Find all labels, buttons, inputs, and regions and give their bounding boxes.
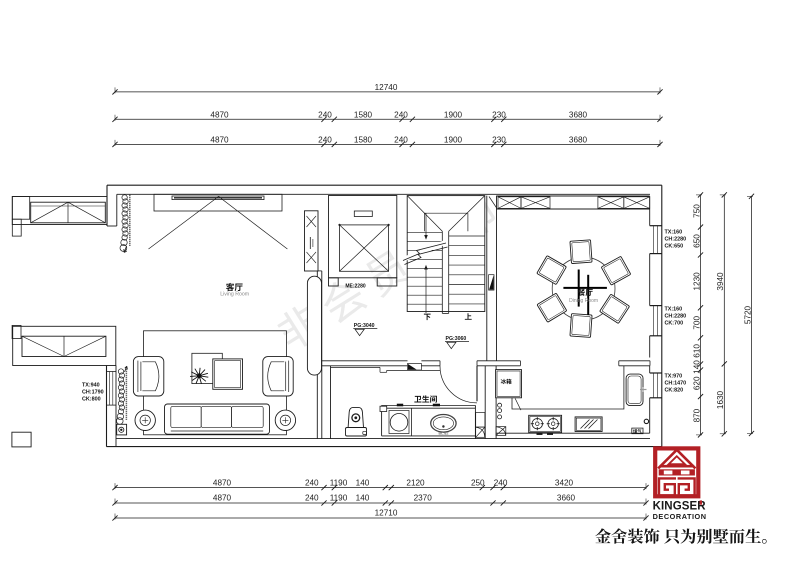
svg-text:1230: 1230 [692, 272, 701, 291]
svg-text:140: 140 [356, 494, 370, 503]
svg-text:CH:2280: CH:2280 [665, 237, 687, 243]
svg-text:240: 240 [318, 135, 332, 144]
svg-text:4870: 4870 [213, 494, 232, 503]
svg-text:3420: 3420 [555, 478, 574, 487]
svg-text:4870: 4870 [213, 478, 232, 487]
svg-text:240: 240 [305, 494, 319, 503]
svg-text:BL:82: BL:82 [439, 432, 449, 436]
svg-text:12740: 12740 [375, 83, 398, 92]
svg-text:240: 240 [394, 135, 408, 144]
svg-text:650: 650 [692, 234, 701, 248]
svg-text:TX:160: TX:160 [665, 307, 683, 313]
svg-text:870: 870 [692, 408, 701, 422]
svg-text:250: 250 [471, 478, 485, 487]
svg-text:Living Room: Living Room [220, 291, 249, 297]
svg-text:1580: 1580 [354, 110, 373, 119]
svg-text:CK:820: CK:820 [665, 388, 684, 394]
svg-text:3680: 3680 [569, 110, 588, 119]
svg-text:Dining Room: Dining Room [569, 298, 598, 304]
svg-text:TX:940: TX:940 [82, 383, 100, 389]
svg-text:CK:800: CK:800 [82, 397, 101, 403]
svg-text:700: 700 [692, 316, 701, 330]
svg-text:1190: 1190 [330, 494, 348, 503]
svg-text:TX:160: TX:160 [665, 230, 683, 236]
svg-text:240: 240 [305, 478, 319, 487]
svg-text:KINGSER: KINGSER [653, 501, 707, 513]
svg-text:1900: 1900 [444, 110, 463, 119]
svg-text:ME:2280: ME:2280 [345, 283, 366, 289]
svg-text:140: 140 [356, 478, 370, 487]
svg-text:1900: 1900 [444, 135, 463, 144]
svg-text:PG:3060: PG:3060 [446, 336, 467, 342]
svg-text:240: 240 [394, 110, 408, 119]
svg-text:PG:3040: PG:3040 [354, 323, 375, 329]
svg-text:620: 620 [692, 376, 701, 390]
svg-text:CK:700: CK:700 [665, 321, 684, 327]
svg-text:2120: 2120 [406, 478, 425, 487]
svg-text:2370: 2370 [414, 494, 433, 503]
svg-text:230: 230 [492, 110, 506, 119]
svg-text:CH:2280: CH:2280 [665, 314, 687, 320]
svg-text:1580: 1580 [354, 135, 373, 144]
svg-text:610: 610 [692, 344, 701, 358]
svg-text:5720: 5720 [743, 305, 752, 324]
svg-text:3680: 3680 [569, 135, 588, 144]
svg-text:4870: 4870 [210, 110, 229, 119]
svg-text:3940: 3940 [716, 272, 725, 291]
svg-text:240: 240 [318, 110, 332, 119]
svg-text:TX:970: TX:970 [665, 374, 683, 380]
svg-text:CK:650: CK:650 [665, 244, 684, 250]
svg-text:12710: 12710 [375, 509, 398, 518]
svg-text:240: 240 [494, 478, 508, 487]
svg-text:CH:1470: CH:1470 [665, 381, 687, 387]
svg-text:1190: 1190 [330, 478, 348, 487]
svg-text:230: 230 [492, 135, 506, 144]
svg-text:DECORATION: DECORATION [653, 512, 707, 521]
svg-text:CH:1790: CH:1790 [82, 390, 104, 396]
svg-text:4870: 4870 [210, 135, 229, 144]
svg-text:140: 140 [692, 360, 701, 374]
svg-text:1630: 1630 [716, 390, 725, 409]
svg-text:3660: 3660 [557, 494, 576, 503]
svg-text:750: 750 [692, 204, 701, 218]
